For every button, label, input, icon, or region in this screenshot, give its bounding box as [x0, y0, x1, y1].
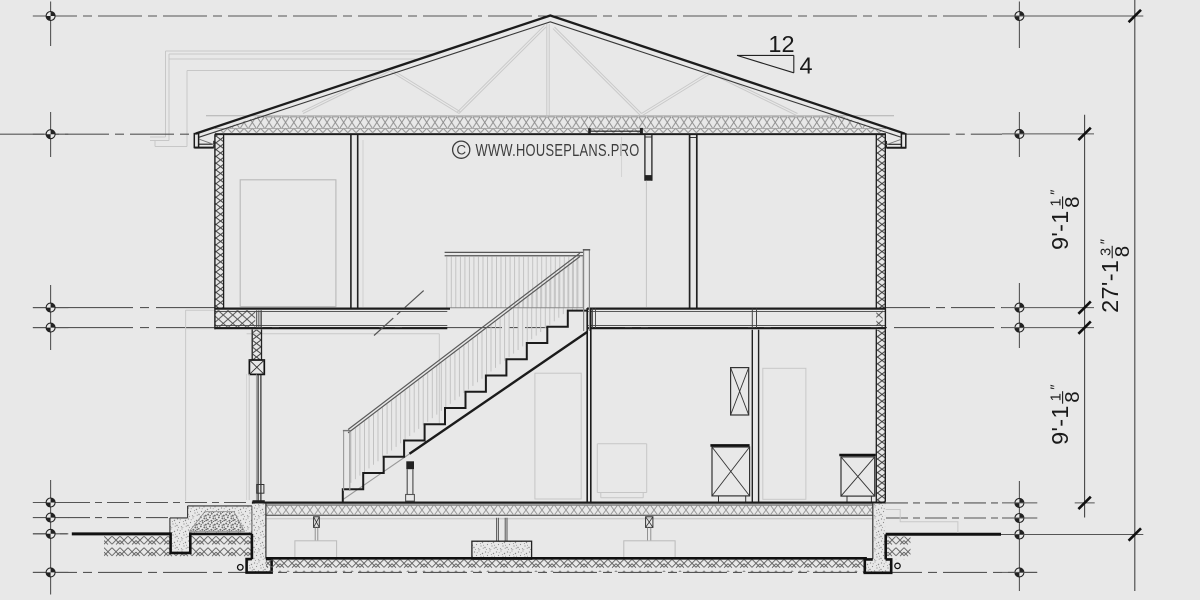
svg-text:″: ″ — [1048, 384, 1065, 390]
svg-text:9'-1: 9'-1 — [1047, 405, 1073, 445]
svg-text:8: 8 — [1111, 246, 1134, 257]
svg-text:9'-1: 9'-1 — [1047, 210, 1073, 250]
svg-text:12: 12 — [768, 31, 794, 57]
svg-text:″: ″ — [1097, 238, 1114, 244]
svg-text:WWW.HOUSEPLANS.PRO: WWW.HOUSEPLANS.PRO — [476, 140, 640, 160]
svg-text:C: C — [456, 143, 466, 158]
svg-text:27'-1: 27'-1 — [1097, 260, 1123, 313]
svg-text:8: 8 — [1061, 391, 1084, 402]
svg-text:8: 8 — [1061, 196, 1084, 207]
svg-text:″: ″ — [1048, 189, 1065, 195]
svg-text:4: 4 — [800, 53, 813, 79]
